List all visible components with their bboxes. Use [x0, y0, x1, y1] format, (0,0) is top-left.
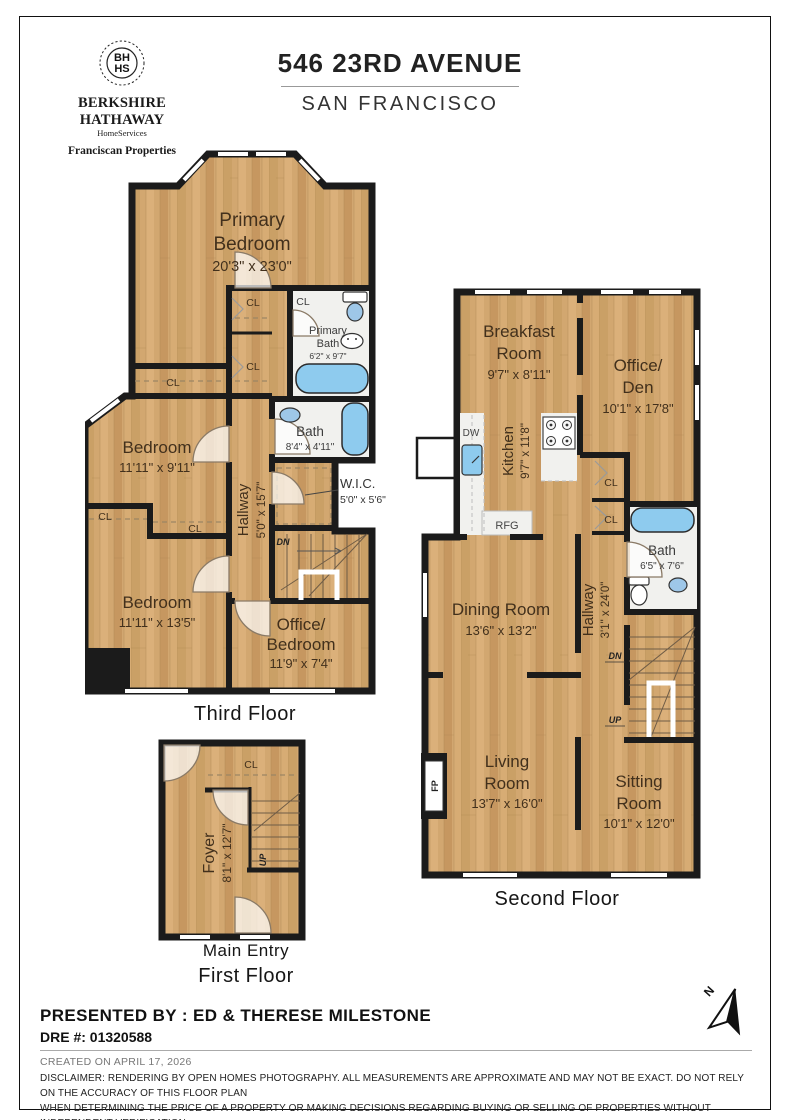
closet-label: CL: [244, 759, 258, 771]
entry-caption: Main Entry: [203, 941, 289, 960]
room-dims: 8'1" x 12'7": [220, 823, 234, 882]
room-label: Bedroom: [267, 635, 336, 654]
dre-number: DRE #: 01320588: [40, 1029, 152, 1045]
closet-label: CL: [246, 361, 260, 373]
room-dims: 11'11" x 13'5": [119, 615, 196, 630]
room-label: Bedroom: [123, 593, 192, 612]
stairs-up-label: UP: [258, 853, 268, 866]
bathtub-icon: [342, 403, 368, 455]
room-dims: 6'5" x 7'6": [640, 561, 684, 572]
toilet-bowl-icon: [631, 585, 647, 605]
floor-caption: First Floor: [198, 965, 294, 987]
closet-label: CL: [166, 377, 180, 389]
second-floor-plan: FP: [415, 285, 715, 925]
disclaimer-line-2: WHEN DETERMINING THE PRICE OF A PROPERTY…: [40, 1101, 756, 1120]
room-dims: 13'6" x 13'2": [465, 623, 537, 638]
room-label: Office/: [614, 356, 663, 375]
room-label: Bath: [296, 424, 324, 439]
room-dims: 10'1" x 17'8": [602, 401, 674, 416]
closet-label: CL: [604, 477, 618, 489]
stairs-up-label: UP: [609, 715, 622, 725]
room-dims: 8'4" x 4'11": [286, 442, 335, 453]
monogram-bottom: HS: [114, 63, 129, 75]
room-dims: 13'7" x 16'0": [471, 796, 543, 811]
room-label: Primary: [309, 325, 347, 337]
sink-icon: [669, 578, 687, 592]
room-label: Kitchen: [500, 426, 517, 476]
property-address: 546 23RD AVENUE: [248, 48, 552, 79]
floor-plan-page: BH HS BERKSHIRE HATHAWAY HomeServices Fr…: [0, 0, 792, 1120]
closet-label: CL: [246, 297, 260, 309]
brand-services: HomeServices: [50, 128, 194, 138]
room-label: Hallway: [235, 483, 252, 536]
room-label: Room: [616, 794, 661, 813]
closet-label: CL: [296, 296, 310, 308]
property-city: SAN FRANCISCO: [248, 93, 552, 116]
north-label: N: [701, 983, 717, 999]
first-floor-plan: Foyer 8'1" x 12'7" CL UP Main Entry Firs…: [150, 735, 320, 995]
closet-label: CL: [188, 523, 202, 535]
room-label: Foyer: [201, 832, 218, 874]
created-date: CREATED ON APRIL 17, 2026: [40, 1056, 192, 1068]
floor-caption: Third Floor: [194, 703, 296, 725]
refrigerator-label: RFG: [495, 520, 518, 532]
room-dims: 3'1" x 24'0": [600, 582, 612, 639]
room-label: Room: [484, 774, 529, 793]
closet-label: CL: [98, 511, 112, 523]
chimney-block: [85, 648, 130, 691]
room-label: Bedroom: [213, 234, 290, 255]
room-label: Dining Room: [452, 600, 550, 619]
footer-divider: [40, 1050, 752, 1051]
room-dims: 20'3" x 23'0": [212, 259, 292, 275]
bathtub-icon: [631, 508, 694, 532]
toilet-bowl-icon: [347, 303, 363, 321]
room-label: Living: [485, 752, 529, 771]
closet-label: CL: [604, 514, 618, 526]
sink-icon: [280, 408, 300, 422]
room-dims: 11'9" x 7'4": [269, 656, 332, 671]
room-label: Room: [496, 344, 541, 363]
fireplace: FP: [421, 753, 447, 819]
third-floor-plan: Primary Bedroom 20'3" x 23'0" Primary Ba…: [85, 138, 405, 738]
room-dims: 9'7" x 8'11": [487, 367, 550, 382]
room-label: Den: [622, 378, 653, 397]
bathtub-icon: [296, 364, 368, 393]
brand-monogram-icon: BH HS: [97, 38, 147, 88]
room-label: Bedroom: [123, 438, 192, 457]
room-dims: 9'7" x 11'8": [520, 423, 532, 479]
toilet-icon: [343, 292, 367, 302]
dishwasher-label: DW: [463, 428, 480, 439]
north-arrow: N: [692, 978, 762, 1048]
toilet-icon: [629, 577, 649, 585]
room-label: Primary: [219, 210, 285, 231]
stairs-down-label: DN: [609, 651, 622, 661]
presented-by: PRESENTED BY : ED & THERESE MILESTONE: [40, 1006, 431, 1026]
disclaimer-line-1: DISCLAIMER: RENDERING BY OPEN HOMES PHOT…: [40, 1071, 756, 1101]
brand-name: BERKSHIRE HATHAWAY: [50, 95, 194, 129]
room-label: Sitting: [615, 772, 662, 791]
room-dims: 5'0" x 15'7": [256, 482, 268, 539]
room-dims: 10'1" x 12'0": [603, 816, 675, 831]
room-label: Hallway: [580, 583, 597, 636]
room-dims: 5'0" x 5'6": [340, 494, 386, 506]
room-dims: 6'2" x 9'7": [309, 351, 346, 361]
kitchen-window-bay: [417, 438, 457, 478]
disclaimer: DISCLAIMER: RENDERING BY OPEN HOMES PHOT…: [40, 1071, 756, 1120]
title-divider: [281, 86, 519, 87]
stairs-down-label: DN: [277, 537, 290, 547]
room-label: Breakfast: [483, 322, 555, 341]
title-block: 546 23RD AVENUE SAN FRANCISCO: [248, 48, 552, 116]
kitchen-sink-icon: [462, 445, 482, 475]
room-dims: 11'11" x 9'11": [119, 460, 195, 475]
room-label: Bath: [317, 338, 340, 350]
room-label: W.I.C.: [340, 476, 375, 491]
floor-caption: Second Floor: [495, 888, 620, 910]
room-label: Bath: [648, 543, 676, 558]
fireplace-label: FP: [430, 780, 440, 792]
room-label: Office/: [277, 615, 326, 634]
